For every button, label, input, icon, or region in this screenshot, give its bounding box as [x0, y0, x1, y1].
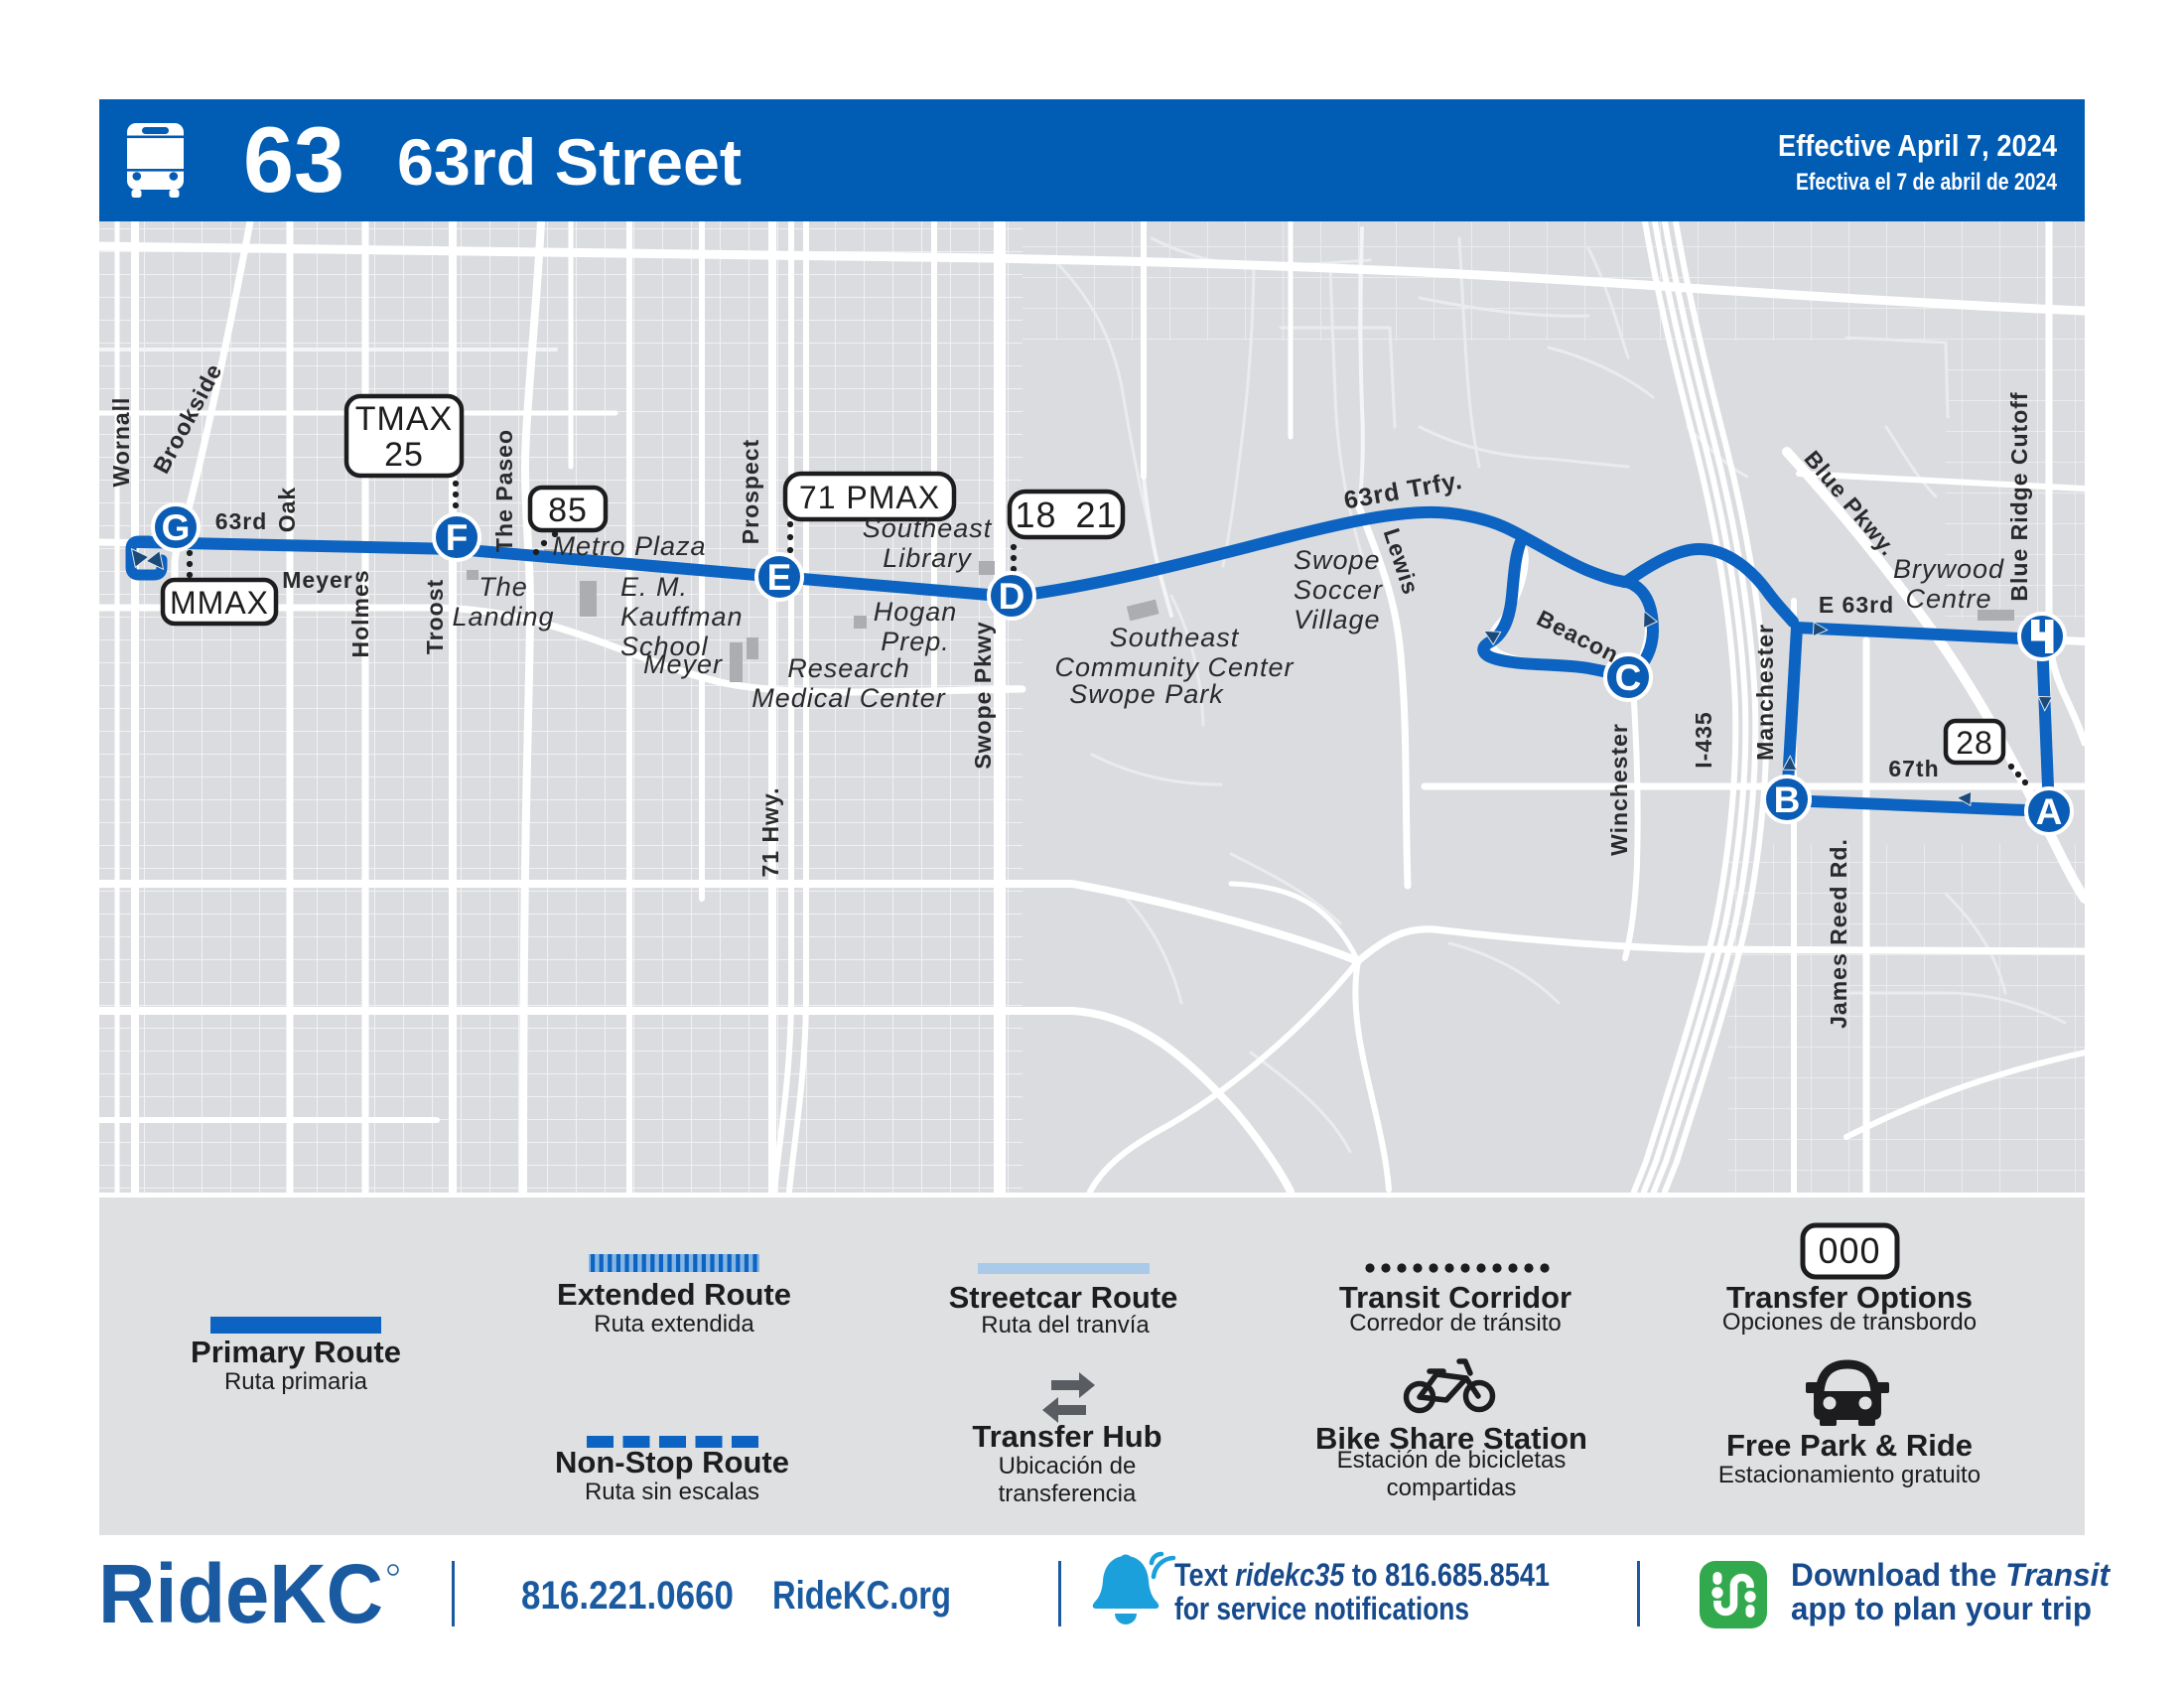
svg-text:Prep.: Prep. — [881, 627, 950, 656]
svg-text:Ruta primaria: Ruta primaria — [224, 1368, 368, 1395]
svg-text:Brywood: Brywood — [1893, 554, 2004, 584]
svg-text:Troost: Troost — [422, 579, 448, 654]
svg-text:Village: Village — [1294, 605, 1381, 635]
svg-text:Landing: Landing — [452, 602, 554, 632]
svg-text:Primary Route: Primary Route — [191, 1335, 401, 1369]
svg-text:C: C — [1615, 657, 1642, 698]
svg-text:B: B — [1774, 779, 1801, 820]
svg-text:E: E — [767, 557, 792, 598]
svg-text:F: F — [446, 517, 469, 558]
svg-text:Streetcar Route: Streetcar Route — [949, 1280, 1178, 1315]
svg-text:18 21: 18 21 — [1015, 494, 1117, 535]
svg-text:Opciones de transbordo: Opciones de transbordo — [1722, 1309, 1977, 1336]
svg-text:Blue Ridge Cutoff: Blue Ridge Cutoff — [2006, 391, 2032, 601]
svg-text:Download the Transit: Download the Transit — [1791, 1557, 2111, 1593]
svg-text:Prospect: Prospect — [738, 439, 763, 544]
svg-text:G: G — [162, 507, 191, 548]
svg-text:E. M.: E. M. — [620, 572, 688, 602]
svg-text:D: D — [999, 576, 1025, 617]
svg-text:Efectiva el 7 de abril de 2024: Efectiva el 7 de abril de 2024 — [1796, 169, 2058, 196]
svg-text:Effective April 7, 2024: Effective April 7, 2024 — [1778, 128, 2058, 163]
svg-text:Manchester: Manchester — [1752, 624, 1778, 761]
svg-text:Hogan: Hogan — [874, 597, 958, 627]
svg-text:Ubicación de: Ubicación de — [999, 1453, 1137, 1480]
svg-text:E 63rd: E 63rd — [1819, 592, 1894, 618]
svg-text:for service notifications: for service notifications — [1174, 1591, 1469, 1626]
svg-text:Ruta sin escalas: Ruta sin escalas — [585, 1479, 759, 1505]
svg-text:Kauffman: Kauffman — [620, 602, 744, 632]
svg-text:Meyer: Meyer — [643, 649, 723, 679]
svg-text:compartidas: compartidas — [1387, 1475, 1517, 1501]
svg-text:71 Hwy.: 71 Hwy. — [757, 787, 783, 878]
svg-text:The: The — [478, 572, 528, 602]
svg-text:RideKC.org: RideKC.org — [772, 1574, 951, 1618]
svg-text:TMAX: TMAX — [355, 400, 453, 438]
svg-text:app to plan your trip: app to plan your trip — [1791, 1591, 2092, 1626]
svg-text:Meyer: Meyer — [282, 567, 352, 593]
svg-text:25: 25 — [384, 436, 424, 474]
svg-text:Metro Plaza: Metro Plaza — [552, 531, 706, 561]
svg-text:Oak: Oak — [274, 487, 300, 532]
svg-text:Library: Library — [883, 543, 972, 573]
svg-text:Swope Pkwy: Swope Pkwy — [970, 621, 996, 769]
svg-text:Free Park & Ride: Free Park & Ride — [1726, 1428, 1973, 1463]
svg-text:Research: Research — [787, 653, 910, 683]
svg-text:67th: 67th — [1888, 756, 1939, 781]
svg-text:Soccer: Soccer — [1294, 575, 1383, 605]
svg-text:Holmes: Holmes — [347, 569, 373, 657]
svg-text:Swope: Swope — [1294, 545, 1381, 575]
svg-text:Winchester: Winchester — [1606, 723, 1632, 856]
svg-text:Estacionamiento gratuito: Estacionamiento gratuito — [1718, 1462, 1980, 1488]
svg-text:Extended Route: Extended Route — [557, 1277, 791, 1312]
svg-text:James Reed Rd.: James Reed Rd. — [1826, 838, 1851, 1029]
svg-text:Ruta extendida: Ruta extendida — [594, 1311, 754, 1338]
svg-text:Swope Park: Swope Park — [1069, 679, 1224, 709]
svg-text:Centre: Centre — [1905, 584, 1991, 614]
svg-text:I-435: I-435 — [1691, 711, 1716, 768]
svg-text:Southeast: Southeast — [863, 513, 993, 543]
svg-text:Medical Center: Medical Center — [751, 683, 946, 713]
svg-text:Transfer Hub: Transfer Hub — [972, 1419, 1161, 1454]
svg-text:63: 63 — [243, 107, 344, 212]
svg-text:816.221.0660: 816.221.0660 — [521, 1574, 734, 1618]
svg-text:63rd: 63rd — [215, 508, 268, 534]
svg-text:000: 000 — [1818, 1230, 1880, 1271]
svg-text:MMAX: MMAX — [170, 585, 269, 621]
svg-text:Wornall: Wornall — [108, 397, 134, 488]
svg-text:85: 85 — [548, 492, 588, 529]
svg-text:Text ridekc35 to 816.685.8541: Text ridekc35 to 816.685.8541 — [1174, 1557, 1550, 1593]
svg-text:The Paseo: The Paseo — [491, 429, 517, 552]
svg-text:Non-Stop Route: Non-Stop Route — [555, 1445, 789, 1480]
svg-text:Ruta del tranvía: Ruta del tranvía — [981, 1312, 1150, 1339]
svg-text:63rd Street: 63rd Street — [397, 125, 742, 199]
svg-text:71 PMAX: 71 PMAX — [799, 480, 940, 515]
svg-text:RideKC: RideKC — [98, 1547, 383, 1640]
svg-text:Southeast: Southeast — [1110, 623, 1240, 652]
svg-text:Estación de bicicletas: Estación de bicicletas — [1337, 1447, 1567, 1474]
svg-text:Corredor de tránsito: Corredor de tránsito — [1349, 1310, 1561, 1337]
svg-text:transferencia: transferencia — [999, 1481, 1137, 1507]
svg-text:28: 28 — [1956, 725, 1993, 761]
svg-text:Community Center: Community Center — [1054, 652, 1294, 682]
svg-text:A: A — [2036, 791, 2063, 832]
